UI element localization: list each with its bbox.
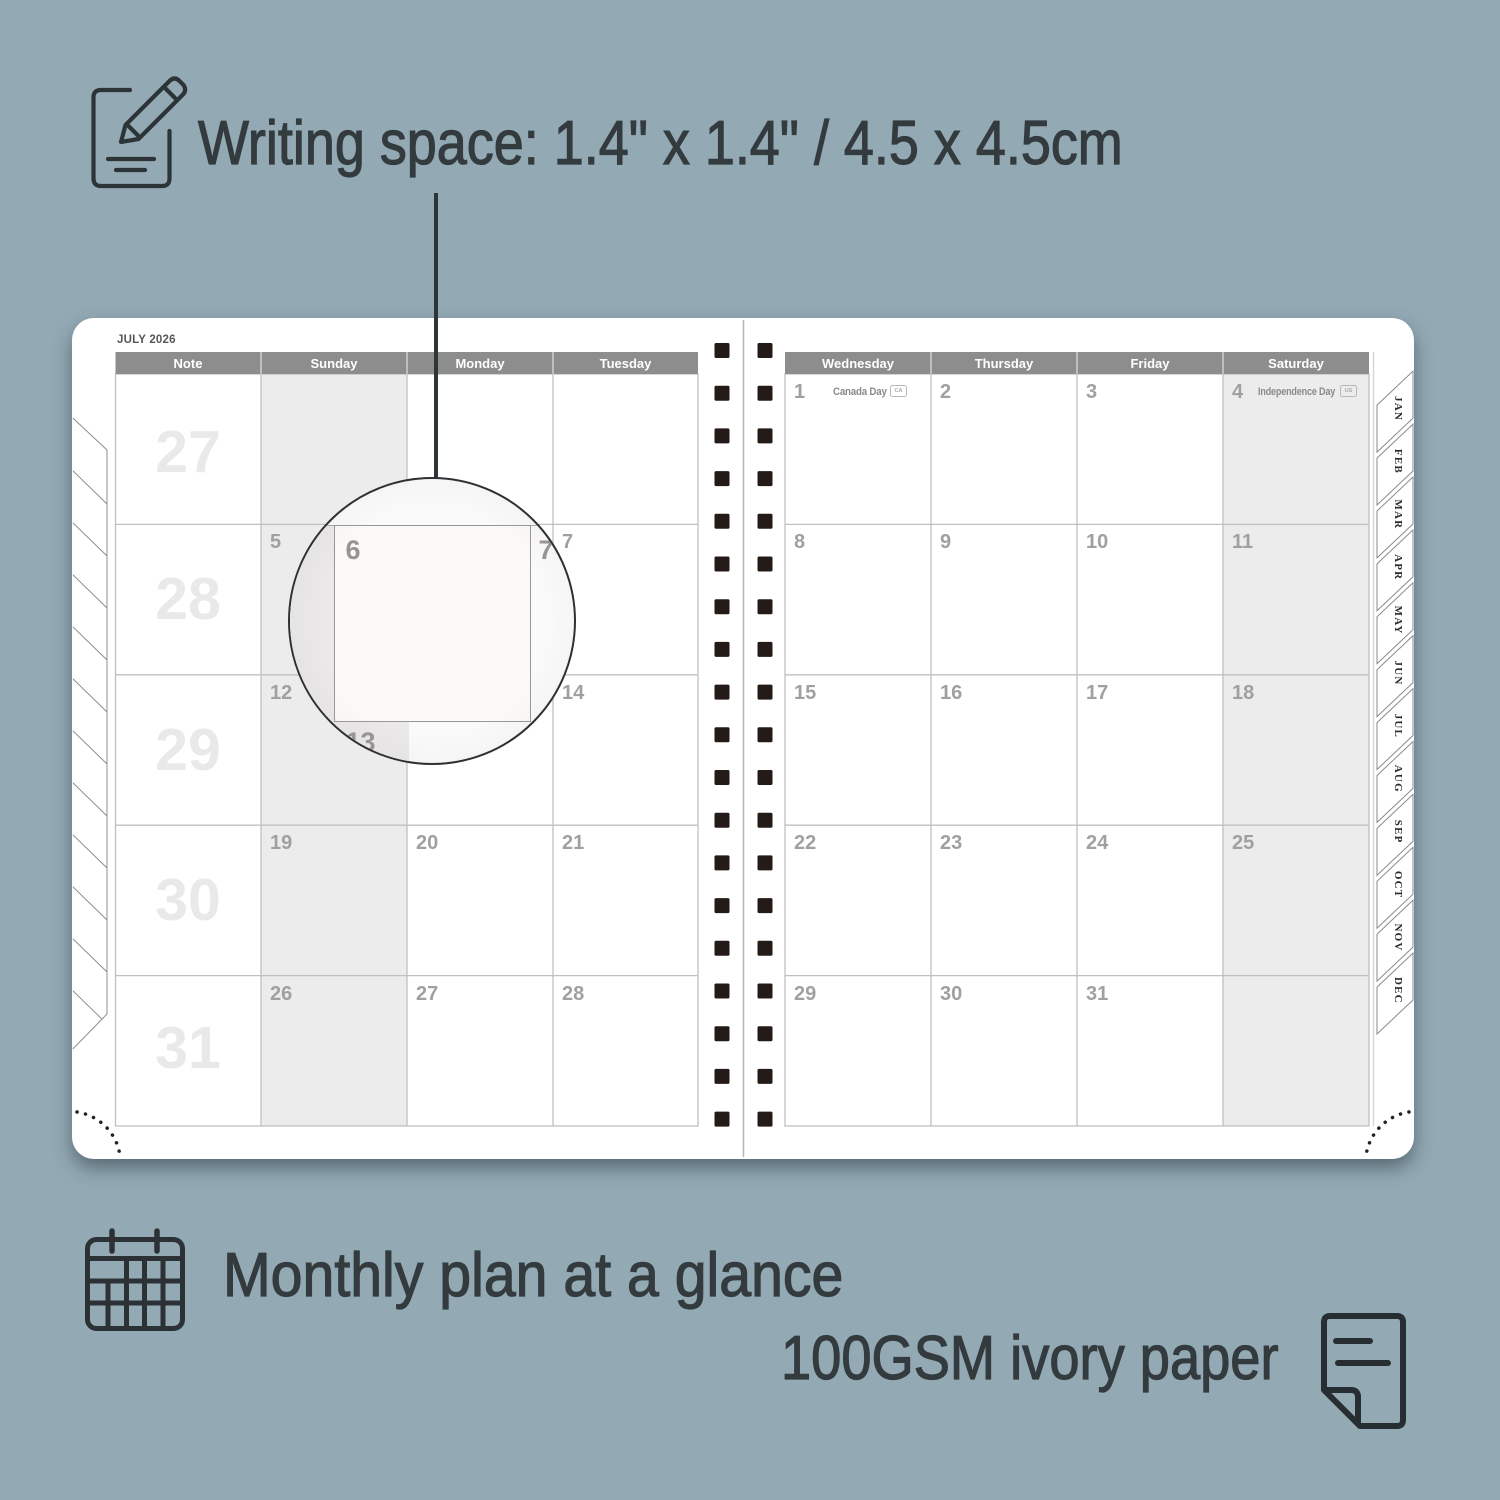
svg-text:APR: APR <box>1392 554 1404 580</box>
svg-text:JAN: JAN <box>1392 396 1404 421</box>
svg-text:AUG: AUG <box>1392 765 1404 793</box>
svg-text:SEP: SEP <box>1392 820 1404 844</box>
svg-text:FEB: FEB <box>1392 449 1404 474</box>
svg-text:NOV: NOV <box>1392 923 1404 951</box>
svg-text:JUL: JUL <box>1392 714 1404 738</box>
svg-text:OCT: OCT <box>1392 871 1404 898</box>
svg-text:MAR: MAR <box>1392 499 1404 529</box>
svg-text:MAY: MAY <box>1392 606 1404 635</box>
svg-text:DEC: DEC <box>1392 977 1404 1004</box>
svg-text:JUN: JUN <box>1392 661 1404 686</box>
